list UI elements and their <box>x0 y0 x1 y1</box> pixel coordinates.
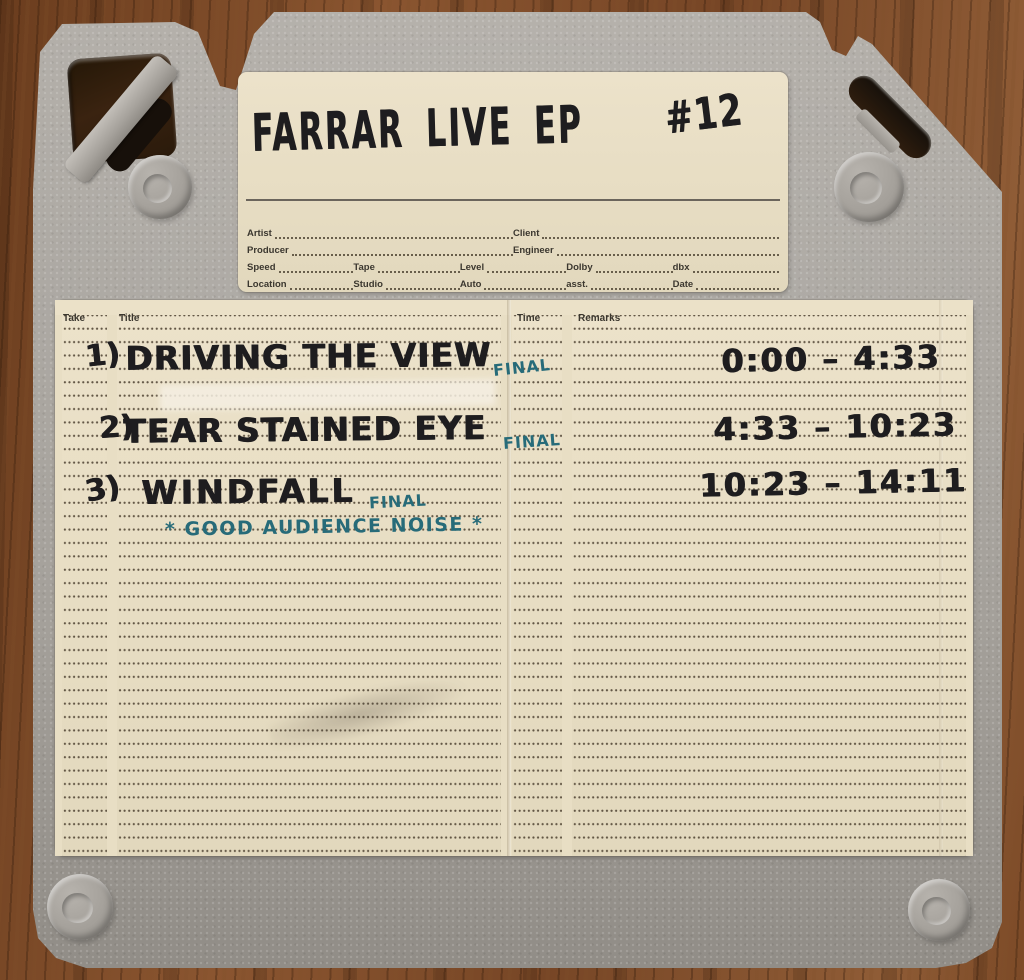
engineer-field-label: Engineer <box>513 246 554 256</box>
asst-field-label: asst. <box>566 280 588 290</box>
client-field-line <box>542 228 779 239</box>
auto-field-label: Auto <box>460 280 482 290</box>
column-gap <box>55 300 62 856</box>
track-log-card: Take Title Time Remarks 1) DRIVING THE V… <box>55 300 973 856</box>
column-header-title: Title <box>119 313 139 324</box>
client-field-label: Client <box>513 229 539 239</box>
level-field-label: Level <box>460 263 484 273</box>
studio-field-label: Studio <box>353 280 383 290</box>
track-number: 1) <box>83 336 121 374</box>
date-field-line <box>696 279 779 290</box>
fold-crease <box>939 300 943 856</box>
artist-field-label: Artist <box>247 229 272 239</box>
tape-field: Tape <box>353 262 459 273</box>
column-header-take: Take <box>63 313 85 324</box>
date-field-label: Date <box>673 280 694 290</box>
asst-field: asst. <box>566 279 672 290</box>
auto-field-line <box>484 279 566 290</box>
card-top-margin <box>55 300 973 315</box>
track-title: TEAR STAINED EYE <box>123 408 486 451</box>
track-time: 10:23 – 14:11 <box>699 461 968 505</box>
screw-boss-top-right <box>834 152 904 222</box>
tape-field-label: Tape <box>353 263 374 273</box>
producer-field: Producer <box>247 245 513 256</box>
track-number: 3) <box>82 469 122 509</box>
asst-field-line <box>591 279 673 290</box>
form-row-1: Artist Client <box>247 222 779 239</box>
dbx-field-label: dbx <box>673 263 690 273</box>
location-field: Location <box>247 279 353 290</box>
date-field: Date <box>673 279 779 290</box>
photo-scene: FARRAR LIVE EP #12 Artist Client Produce… <box>0 0 1024 980</box>
reel-label-card: FARRAR LIVE EP #12 Artist Client Produce… <box>238 72 788 292</box>
form-row-2: Producer Engineer <box>247 239 779 256</box>
column-gap <box>562 300 572 856</box>
dolby-field: Dolby <box>566 262 672 273</box>
speed-field: Speed <box>247 262 353 273</box>
screw-boss-bottom-left <box>47 874 113 940</box>
level-field: Level <box>460 262 566 273</box>
track-time: 0:00 – 4:33 <box>721 338 941 381</box>
title-divider-line <box>246 199 780 201</box>
dbx-field: dbx <box>673 262 779 273</box>
engineer-field: Engineer <box>513 245 779 256</box>
artist-field-line <box>275 228 513 239</box>
form-row-3: Speed Tape Level Dolby dbx <box>247 256 779 273</box>
dbx-field-line <box>693 262 780 273</box>
column-header-remarks: Remarks <box>578 313 620 324</box>
track-status: FINAL <box>502 430 561 453</box>
label-form: Artist Client Producer Engineer <box>247 222 779 290</box>
form-row-4: Location Studio Auto asst. Date <box>247 273 779 290</box>
track-title: DRIVING THE VIEW <box>125 335 491 378</box>
artist-field: Artist <box>247 228 513 239</box>
producer-field-line <box>292 245 513 256</box>
track-time: 4:33 – 10:23 <box>713 405 957 448</box>
studio-field: Studio <box>353 279 459 290</box>
level-field-line <box>487 262 566 273</box>
location-field-line <box>290 279 354 290</box>
engineer-field-line <box>557 245 779 256</box>
screw-boss-bottom-right <box>908 879 970 941</box>
dolby-field-line <box>596 262 673 273</box>
auto-field: Auto <box>460 279 566 290</box>
speed-field-label: Speed <box>247 263 276 273</box>
track-status: FINAL <box>369 490 428 512</box>
tape-field-line <box>378 262 460 273</box>
client-field: Client <box>513 228 779 239</box>
track-title: WINDFALL <box>141 471 355 512</box>
column-header-time: Time <box>517 313 540 324</box>
column-gap <box>966 300 973 856</box>
dolby-field-label: Dolby <box>566 263 592 273</box>
reel-title: FARRAR LIVE EP <box>251 95 584 164</box>
location-field-label: Location <box>247 280 287 290</box>
fold-crease <box>507 300 511 856</box>
studio-field-line <box>386 279 460 290</box>
reel-number: #12 <box>662 84 746 144</box>
producer-field-label: Producer <box>247 246 289 256</box>
speed-field-line <box>279 262 354 273</box>
screw-boss-top-left <box>128 155 192 219</box>
column-gap <box>107 300 117 856</box>
